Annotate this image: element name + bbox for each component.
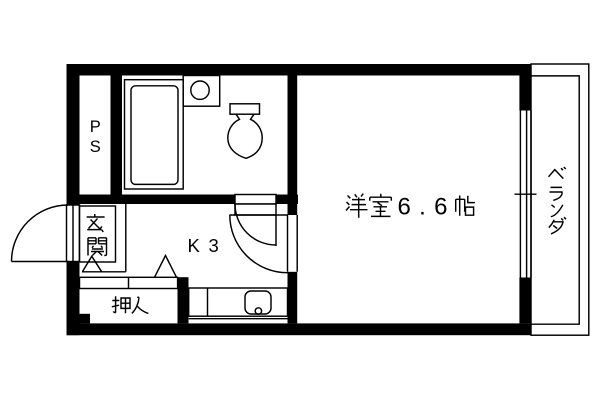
- svg-text:P: P: [90, 118, 101, 136]
- svg-text:6.6: 6.6: [398, 194, 456, 221]
- svg-text:K: K: [188, 235, 201, 256]
- svg-text:S: S: [90, 138, 101, 156]
- svg-text:3: 3: [209, 235, 219, 256]
